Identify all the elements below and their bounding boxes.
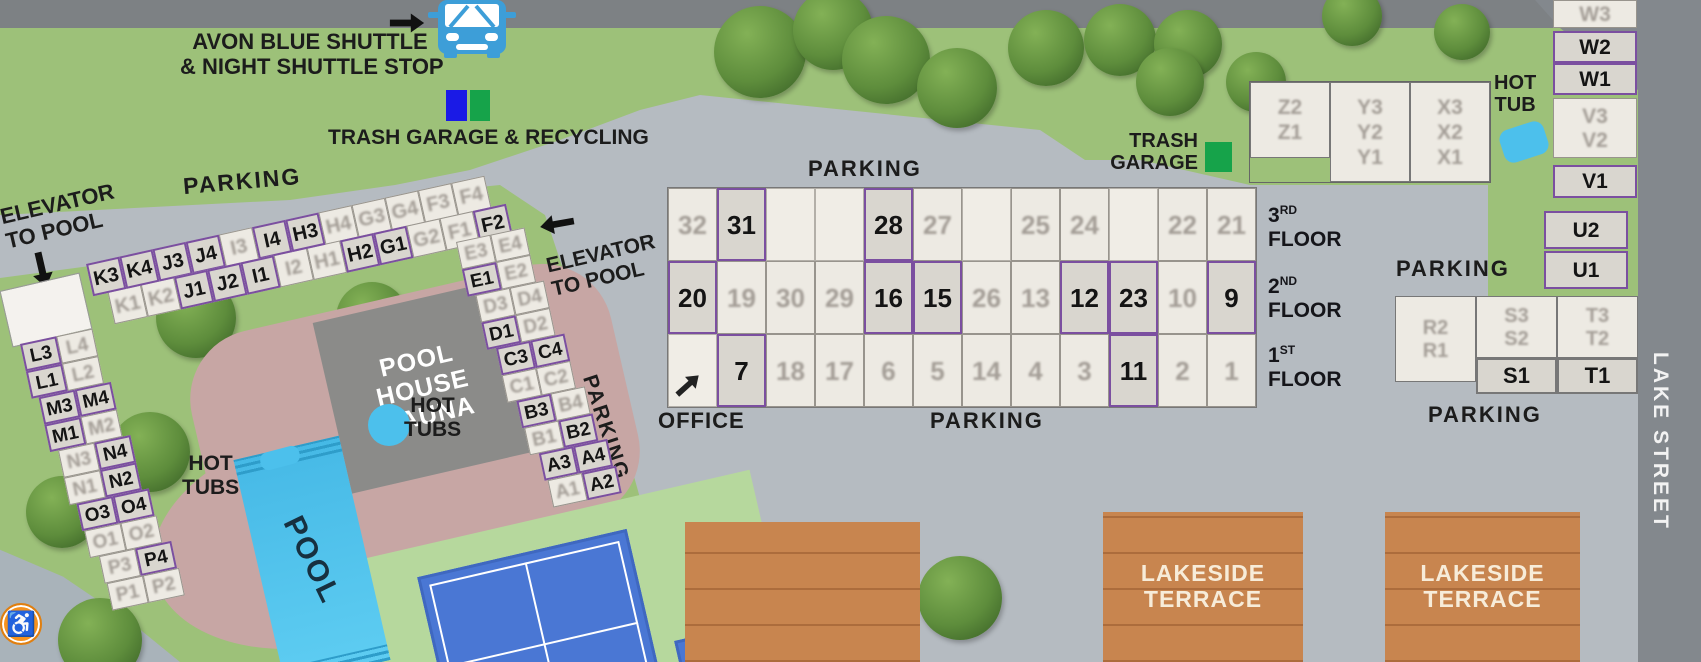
unit-24[interactable]: 24 — [1060, 188, 1109, 261]
first-floor-row: 718176514431121 — [668, 334, 1256, 407]
lake-street-label: LAKE STREET — [1648, 352, 1672, 531]
lakeside-terrace-building: LAKESIDETERRACE — [1385, 512, 1580, 662]
hot-tub-label: HOTTUB — [1494, 72, 1536, 117]
unit-28[interactable]: 28 — [864, 188, 913, 261]
unit-12[interactable]: 12 — [1060, 261, 1109, 334]
unit-t3-t2[interactable]: T3T2 — [1557, 296, 1638, 358]
arrow-left-icon — [536, 209, 578, 239]
empty-slot — [766, 188, 815, 261]
unit-5[interactable]: 5 — [913, 334, 962, 407]
accessibility-icon: ♿ — [0, 603, 42, 645]
unit-15[interactable]: 15 — [913, 261, 962, 334]
wvu-building: W3W2W1V3V2V1U2U1 — [1553, 0, 1637, 289]
tree — [1434, 4, 1490, 60]
unit-16[interactable]: 16 — [864, 261, 913, 334]
unit-1[interactable]: 1 — [1207, 334, 1256, 407]
unit-6[interactable]: 6 — [864, 334, 913, 407]
office-label: OFFICE — [658, 408, 745, 434]
unit-31[interactable]: 31 — [717, 188, 766, 261]
unit-23[interactable]: 23 — [1109, 261, 1158, 334]
unit-18[interactable]: 18 — [766, 334, 815, 407]
second-floor-row: 20193029161526131223109 — [668, 261, 1256, 334]
floor-label-1: 1STFLOOR — [1268, 344, 1342, 392]
zyx-building: Z2Z1Y3Y2Y1X3X2X1 — [1250, 82, 1490, 182]
third-floor-row: 3231282725242221 — [668, 188, 1256, 261]
unit-20[interactable]: 20 — [668, 261, 717, 334]
tree — [1136, 48, 1204, 116]
unit-x3-x2-x1[interactable]: X3X2X1 — [1410, 82, 1490, 182]
empty-slot — [962, 188, 1011, 261]
unit-w1[interactable]: W1 — [1553, 63, 1637, 95]
unit-13[interactable]: 13 — [1011, 261, 1060, 334]
unit-z2-z1[interactable]: Z2Z1 — [1250, 82, 1330, 158]
unit-19[interactable]: 19 — [717, 261, 766, 334]
unit-3[interactable]: 3 — [1060, 334, 1109, 407]
unit-10[interactable]: 10 — [1158, 261, 1207, 334]
unit-29[interactable]: 29 — [815, 261, 864, 334]
tree — [917, 48, 997, 128]
unit-26[interactable]: 26 — [962, 261, 1011, 334]
unit-21[interactable]: 21 — [1207, 188, 1256, 261]
unit-r2-r1[interactable]: R2R1 — [1395, 296, 1476, 382]
unit-v3-v2[interactable]: V3V2 — [1553, 98, 1637, 158]
unit-y3-y2-y1[interactable]: Y3Y2Y1 — [1330, 82, 1410, 182]
road-lake-street — [1638, 0, 1701, 662]
empty-slot — [815, 188, 864, 261]
resort-property-map: POOL HOUSE SAUNA POOL HOTTUBS HOTTUBS HO… — [0, 0, 1701, 662]
unit-11[interactable]: 11 — [1109, 334, 1158, 407]
unit-u1[interactable]: U1 — [1544, 251, 1628, 289]
parking-label: PARKING — [930, 408, 1044, 434]
main-building-unit-grid: 3231282725242221 20193029161526131223109… — [668, 188, 1256, 407]
unit-32[interactable]: 32 — [668, 188, 717, 261]
unit-22[interactable]: 22 — [1158, 188, 1207, 261]
shuttle-bus-icon — [428, 0, 516, 58]
unit-s3-s2[interactable]: S3S2 — [1476, 296, 1557, 358]
tennis-court — [417, 529, 668, 662]
hot-tubs-label: HOTTUBS — [182, 452, 239, 499]
trash-garage-marker — [1205, 142, 1232, 172]
unit-27[interactable]: 27 — [913, 188, 962, 261]
floor-label-3: 3RDFLOOR — [1268, 204, 1342, 252]
unit-u2[interactable]: U2 — [1544, 211, 1628, 249]
elevator-to-pool-label: ELEVATORTO POOL — [544, 230, 663, 301]
unit-2[interactable]: 2 — [1158, 334, 1207, 407]
floor-label-2: 2NDFLOOR — [1268, 275, 1342, 323]
lakeside-terrace-building: LAKESIDETERRACE — [1103, 512, 1303, 662]
hot-tubs-label: HOTTUBS — [404, 394, 461, 441]
unit-w2[interactable]: W2 — [1553, 31, 1637, 63]
unit-t1[interactable]: T1 — [1557, 358, 1638, 394]
tree — [918, 556, 1002, 640]
unit-w3[interactable]: W3 — [1553, 0, 1637, 28]
tree — [1008, 10, 1084, 86]
parking-label: PARKING — [1396, 256, 1510, 282]
unit-17[interactable]: 17 — [815, 334, 864, 407]
tree — [714, 6, 806, 98]
shuttle-stop-label: AVON BLUE SHUTTLE& NIGHT SHUTTLE STOP — [180, 30, 440, 79]
empty-slot — [1109, 188, 1158, 261]
unit-25[interactable]: 25 — [1011, 188, 1060, 261]
parking-label: PARKING — [808, 156, 922, 182]
rst-building: R2R1 S3S2S1 T3T2T1 — [1395, 296, 1638, 394]
unit-9[interactable]: 9 — [1207, 261, 1256, 334]
unit-30[interactable]: 30 — [766, 261, 815, 334]
recycling-marker — [470, 90, 490, 121]
arrow-right-icon — [388, 11, 426, 35]
unit-7[interactable]: 7 — [717, 334, 766, 407]
trash-garage-label: TRASHGARAGE — [1098, 130, 1198, 175]
unit-v1[interactable]: V1 — [1553, 165, 1637, 198]
unit-4[interactable]: 4 — [1011, 334, 1060, 407]
parking-label: PARKING — [1428, 402, 1542, 428]
unit-s1[interactable]: S1 — [1476, 358, 1557, 394]
building-roof — [685, 522, 920, 662]
unit-14[interactable]: 14 — [962, 334, 1011, 407]
trash-garage-marker — [446, 90, 467, 121]
trash-recycling-label: TRASH GARAGE & RECYCLING — [328, 126, 649, 150]
